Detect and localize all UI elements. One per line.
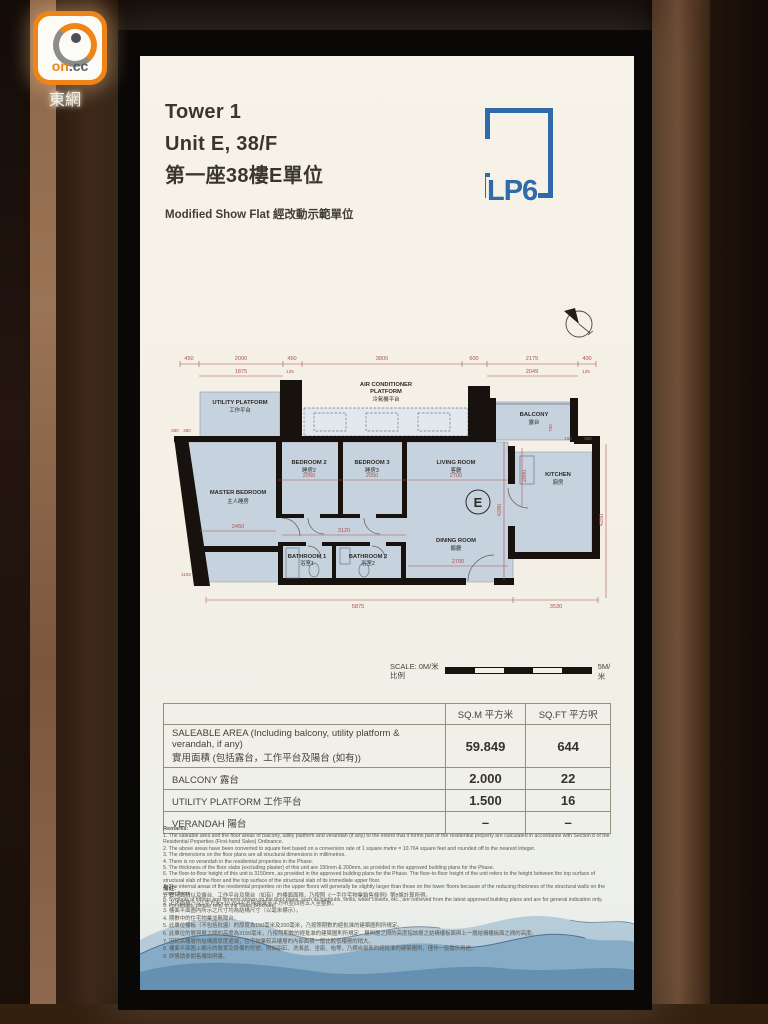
dim-2000: 2000 [235, 356, 247, 362]
dim-1875: 1875 [235, 369, 247, 375]
balcony-sqm: 2.000 [445, 768, 526, 790]
saleable-area-sqft: 644 [526, 725, 611, 768]
wall-column-a [280, 380, 302, 442]
wall-right-dark [710, 0, 768, 1024]
dim-2450: 2450 [232, 524, 244, 530]
scale-labels-left: SCALE: 0M/米 比例 [390, 662, 439, 680]
dim-360b: 360 [584, 436, 592, 441]
label-balcony-zh: 露台 [529, 418, 540, 426]
wall-kitchen-left-lower [508, 526, 515, 559]
wall-corridor-3 [376, 514, 407, 518]
label-dining-room-zh: 飯廳 [451, 544, 462, 552]
label-bathroom1: BATHROOM 1 [288, 554, 327, 560]
dim-2880: 2880 [522, 470, 528, 482]
lp6-logo: LP6 [485, 108, 553, 198]
scale-bar-group: SCALE: 0M/米 比例 5M/米 [390, 662, 610, 682]
wall-master-bottom [198, 546, 282, 552]
utility-platform-area [200, 392, 280, 438]
scale-seg-5 [562, 668, 591, 673]
wall-corridor-2 [320, 514, 360, 518]
dim-4280: 4280 [497, 504, 503, 516]
saleable-area-table: SQ.M 平方米 SQ.FT 平方呎 SALEABLE AREA (Includ… [163, 703, 611, 834]
remark-zh-item-8: 8. 樓面平面圖上顯示的裝置及設備的符號，例如浴缸、洗滌盆、坐廁、枱等，乃摘自最… [163, 946, 613, 954]
saleable-area-label: SALEABLE AREA (Including balcony, utilit… [172, 728, 437, 750]
utility-platform-sqm: 1.500 [445, 790, 526, 812]
unit-title-zh: 第一座38樓E單位 [165, 160, 353, 192]
label-utility-platform-zh: 工作平台 [229, 406, 251, 414]
dim-5875: 5875 [352, 604, 364, 610]
ac-unit-2 [366, 413, 398, 431]
wall-pillar-right [652, 0, 710, 1024]
balcony-sqft: 22 [526, 768, 611, 790]
wall-balcony-left [490, 398, 496, 442]
dim-2700a: 2700 [450, 473, 462, 479]
scale-seg-2 [475, 668, 504, 673]
label-utility-platform: UTILITY PLATFORM [212, 400, 267, 406]
wall-b3-living [402, 442, 407, 516]
table-row-saleable-area: SALEABLE AREA (Including balcony, utilit… [164, 725, 611, 768]
remark-zh-item-1: 1. 實用面積以及露台、工作平台及陽台（如有）的樓面面積，乃按照《一手住宅物業銷… [163, 893, 613, 901]
header-sqft: SQ.FT 平方呎 [526, 704, 611, 725]
remark-item-1: 1. The saleable area and the floor areas… [163, 833, 613, 846]
label-bedroom3: BEDROOM 3 [354, 460, 390, 466]
label-dining-room: DINING ROOM [436, 538, 476, 544]
wall-bath-top-2 [322, 542, 370, 546]
label-ac-platform-zh: 冷氣機平台 [373, 395, 400, 403]
oncc-watermark: on.cc 東網 [28, 6, 138, 116]
dim-125a: 125 [286, 369, 294, 374]
label-ac-platform-2: PLATFORM [370, 389, 402, 395]
dim-600: 600 [469, 356, 478, 362]
scale-seg-3 [504, 668, 533, 673]
wall-top-bedrooms [302, 436, 472, 442]
remark-zh-item-3: 3. 樓面平面圖內所示之尺寸均為結構尺寸（以毫米標示）。 [163, 908, 613, 916]
dim-2050b: 2050 [366, 473, 378, 479]
wall-bottom-kitchen [513, 552, 600, 559]
remark-zh-item-5: 5. 此單位樓板（不包括批盪）的厚度為150毫米及200毫米，乃按照期數的經批准… [163, 923, 613, 931]
scale-label-zero: SCALE: 0M/米 [390, 662, 439, 671]
label-kitchen-zh: 廚房 [553, 478, 564, 486]
table-header-row: SQ.M 平方米 SQ.FT 平方呎 [164, 704, 611, 725]
poster-frame: Tower 1 Unit E, 38/F 第一座38樓E單位 Modified … [118, 30, 652, 1010]
wall-right-kitchen [592, 444, 600, 558]
label-bathroom2-zh: 浴室2 [361, 559, 375, 567]
wall-b2-b3 [338, 442, 343, 516]
photo-scene: on.cc 東網 Tower 1 Unit E, 38/F 第一座38樓E單位 … [0, 0, 768, 1024]
wall-bath2-right [401, 542, 406, 582]
remark-item-6: 6. The floor-to-floor height of this uni… [163, 871, 613, 884]
scale-label-5m: 5M/米 [598, 662, 611, 682]
label-ac-platform-1: AIR CONDITIONER [360, 382, 413, 388]
wall-corridor-1 [282, 514, 304, 518]
wall-bath-bottom [278, 578, 406, 585]
dim-2050a: 2050 [303, 473, 315, 479]
dim-2700b: 2700 [452, 559, 464, 565]
wall-dining-bottom-left [406, 578, 466, 585]
dim-2049: 2049 [526, 369, 538, 375]
header-empty-cell [164, 704, 446, 725]
poster-header: Tower 1 Unit E, 38/F 第一座38樓E單位 Modified … [165, 96, 353, 222]
oncc-wordmark: on.cc [38, 58, 102, 74]
dim-450a: 450 [184, 356, 193, 362]
table-row-utility-platform: UTILITY PLATFORM 工作平台 1.500 16 [164, 790, 611, 812]
unit-badge-label: E [474, 495, 483, 510]
label-master-bedroom: MASTER BEDROOM [210, 490, 267, 496]
label-bathroom1-zh: 浴室1 [300, 559, 314, 567]
saleable-area-sqm: 59.849 [445, 725, 526, 768]
dim-380: 380 [183, 428, 191, 433]
header-sqm: SQ.M 平方米 [445, 704, 526, 725]
table-row-balcony: BALCONY 露台 2.000 22 [164, 768, 611, 790]
label-kitchen: KITCHEN [545, 472, 571, 478]
remark-zh-item-9: 9. 詳情請參閱售樓說明書。 [163, 954, 613, 962]
tower-title: Tower 1 [165, 96, 353, 128]
dim-4250: 4250 [599, 514, 605, 526]
wall-top-master [174, 436, 284, 442]
dim-2175: 2175 [526, 356, 538, 362]
saleable-area-label-zh: 實用面積 (包括露台，工作平台及陽台 (如有)) [172, 750, 437, 764]
lp6-logo-text: LP6 [486, 177, 538, 206]
north-arrow-icon [560, 304, 600, 344]
label-balcony: BALCONY [520, 412, 549, 418]
utility-platform-label: UTILITY PLATFORM 工作平台 [164, 790, 446, 812]
scale-seg-1 [446, 668, 475, 673]
remarks-zh: 備註: 1. 實用面積以及露台、工作平台及陽台（如有）的樓面面積，乃按照《一手住… [163, 884, 613, 961]
showflat-poster: Tower 1 Unit E, 38/F 第一座38樓E單位 Modified … [140, 56, 634, 990]
scale-label-zh: 比例 [390, 671, 439, 680]
wall-kitchen-left-upper [508, 446, 515, 484]
wall-left-dark [0, 0, 30, 1024]
label-living-room: LIVING ROOM [437, 460, 476, 466]
floorplan: E UTILITY PLATFORM 工作平台 AIR CONDITIONER … [168, 350, 610, 624]
utility-platform-sqft: 16 [526, 790, 611, 812]
scale-bar [445, 667, 592, 674]
oncc-site-name: 東網 [33, 86, 97, 110]
oncc-logo: on.cc [33, 11, 107, 85]
remarks-title-zh: 備註: [163, 884, 613, 892]
wall-mid-left [56, 0, 118, 1024]
oncc-dot-icon [71, 33, 81, 43]
wall-bath1-left [278, 542, 283, 582]
ac-unit-1 [314, 413, 346, 431]
label-bathroom2: BATHROOM 2 [349, 554, 388, 560]
dim-100: 100 [564, 436, 572, 441]
dim-125b: 125 [582, 369, 590, 374]
wall-column-b [468, 386, 490, 442]
wall-pillar-left [30, 0, 56, 1024]
showflat-subtitle: Modified Show Flat 經改動示範單位 [165, 206, 353, 222]
label-bedroom2: BEDROOM 2 [291, 460, 326, 466]
unit-title: Unit E, 38/F [165, 128, 353, 160]
wall-bath-divider [332, 542, 336, 582]
dim-400: 400 [582, 356, 591, 362]
dim-3120: 3120 [338, 528, 350, 534]
ac-unit-3 [418, 413, 450, 431]
dim-3530: 3530 [550, 604, 562, 610]
scale-seg-4 [533, 668, 562, 673]
dim-450b: 450 [287, 356, 296, 362]
label-master-bedroom-zh: 主人睡房 [227, 497, 249, 505]
oncc-cc-text: .cc [69, 58, 88, 74]
remark-zh-item-6: 6. 此單位的層與層之間的高度為3150毫米，乃按照期數的經批准的建築圖則所規定… [163, 931, 613, 939]
dim-1192: 1192 [181, 572, 191, 577]
dim-360a: 360 [171, 428, 179, 433]
lp6-logo-gap [484, 139, 490, 173]
remarks-title: Remarks: [163, 826, 613, 832]
dim-750: 750 [548, 424, 553, 432]
dim-3800: 3800 [376, 356, 388, 362]
oncc-on-text: on [52, 58, 69, 74]
balcony-label: BALCONY 露台 [164, 768, 446, 790]
